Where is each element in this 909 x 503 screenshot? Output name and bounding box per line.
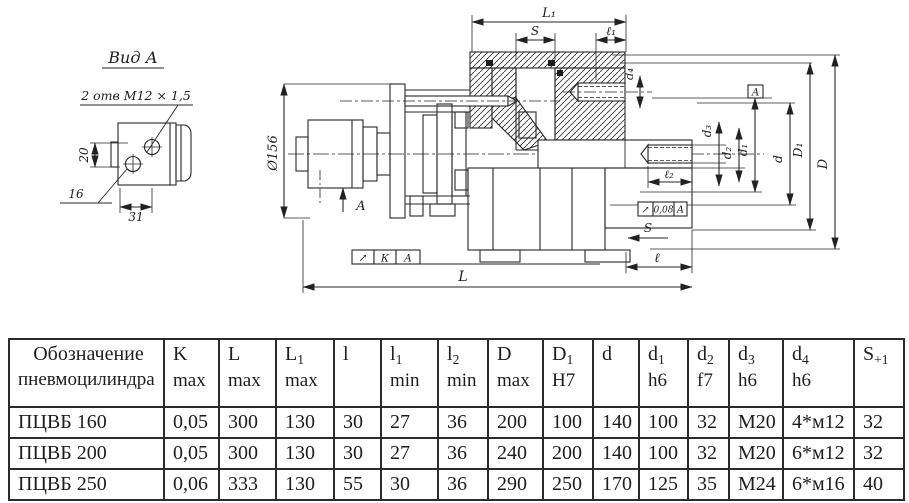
svg-text:А: А — [676, 205, 684, 216]
svg-text:А: А — [751, 88, 760, 99]
rotary-feed-unit — [296, 84, 405, 218]
table-row: ПЦВБ 200 0,05 300 130 30 27 36 240 200 1… — [9, 438, 904, 469]
cylinder-designation: ПЦВБ 200 — [9, 438, 164, 469]
flange-plate — [390, 84, 405, 218]
col-header-K: Kmax — [164, 339, 219, 407]
col-header-d4: d4h6 — [783, 339, 854, 407]
shaft-thread-hole — [641, 145, 692, 163]
dim-d1: d₁ — [736, 144, 750, 157]
dim-d2: d₂ — [720, 147, 734, 160]
col-header-l1: l1min — [381, 339, 438, 407]
table-row: ПЦВБ 250 0,06 333 130 55 30 36 290 250 1… — [9, 469, 904, 500]
rear-cap-section — [555, 68, 625, 140]
col-header-D1: D1H7 — [543, 339, 593, 407]
scanned-drawing-page: Вид А 2 отв М12 × 1,5 20 16 — [0, 0, 909, 503]
tolerance-frame-K: ↗ К А — [352, 250, 420, 265]
col-header-S1: S+1 — [854, 339, 904, 407]
col-header-d2: d2f7 — [688, 339, 729, 407]
dim-d: d — [770, 155, 785, 163]
col-header-D: Dmax — [488, 339, 543, 407]
datum-A-flag: А — [748, 85, 763, 99]
svg-text:А: А — [403, 253, 412, 265]
dim-D1: D₁ — [790, 142, 805, 158]
dim-L: L — [457, 269, 467, 285]
header-row: Обозначение пневмоцилиндра Kmax Lmax L1m… — [9, 339, 904, 407]
col-header-L1: L1max — [276, 339, 334, 407]
view-arrow-label: А — [355, 199, 366, 214]
dim-L1: L₁ — [541, 6, 556, 21]
cylinder-designation: ПЦВБ 250 — [9, 469, 164, 500]
dim-S-top: S — [531, 24, 539, 38]
table-row: ПЦВБ 160 0,05 300 130 30 27 36 200 100 1… — [9, 407, 904, 438]
detail-view-title: Вид А — [107, 48, 157, 67]
runout-icon: ↗ — [641, 205, 649, 216]
svg-text:К: К — [380, 253, 390, 265]
seal — [548, 60, 555, 66]
holes-callout: 2 отв М12 × 1,5 — [80, 88, 191, 103]
col-header-L: Lmax — [219, 339, 276, 407]
dim-s-small: S — [644, 221, 652, 235]
dim-l1: ℓ₁ — [606, 24, 616, 38]
cylinder-cap-section — [470, 52, 625, 68]
col-header-designation: Обозначение пневмоцилиндра — [9, 339, 164, 407]
runout-icon: ↗ — [358, 252, 367, 265]
detail-view-A: Вид А 2 отв М12 × 1,5 20 16 — [60, 48, 193, 224]
col-header-l2: l2min — [438, 339, 488, 407]
dim-d3: d₃ — [700, 125, 714, 138]
technical-drawing: Вид А 2 отв М12 × 1,5 20 16 — [0, 0, 909, 336]
dim-l: ℓ — [654, 251, 660, 266]
col-header-l: l — [334, 339, 381, 407]
dim-dia156: Ø156 — [266, 135, 281, 171]
dim-D: D — [816, 158, 831, 170]
tolerance-frame-runout: ↗ 0,08 А — [638, 202, 687, 216]
dim-31: 31 — [128, 210, 143, 224]
dim-20: 20 — [77, 147, 91, 164]
dim-16: 16 — [68, 187, 84, 201]
bolt-hole — [142, 137, 162, 157]
mounting-thread-hole — [563, 83, 652, 101]
dim-d4: d₄ — [622, 68, 636, 80]
col-header-d3: d3h6 — [729, 339, 783, 407]
seal — [486, 60, 493, 66]
main-section-view: Ø156 А L₁ S ℓ₁ d₄ d₃ d₂ d₁ d D₁ — [266, 6, 840, 293]
seal — [557, 70, 563, 76]
distributor-stack — [410, 104, 468, 216]
svg-text:0,08: 0,08 — [653, 206, 673, 216]
col-header-d: d — [593, 339, 639, 407]
col-header-d1: d1h6 — [639, 339, 688, 407]
bolt-hole — [123, 154, 143, 174]
dim-l2: ℓ₂ — [664, 167, 674, 181]
dimension-table: Обозначение пневмоцилиндра Kmax Lmax L1m… — [8, 338, 905, 501]
cylinder-designation: ПЦВБ 160 — [9, 407, 164, 438]
